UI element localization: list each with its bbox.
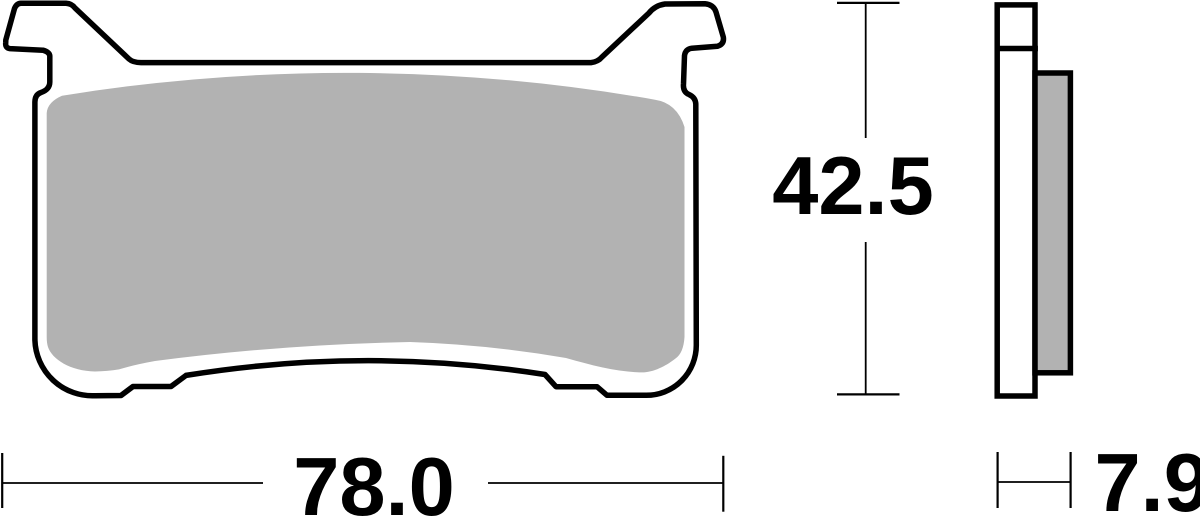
svg-text:78.0: 78.0 [293, 440, 455, 516]
svg-text:42.5: 42.5 [772, 139, 934, 232]
svg-text:7.9: 7.9 [1095, 436, 1200, 516]
